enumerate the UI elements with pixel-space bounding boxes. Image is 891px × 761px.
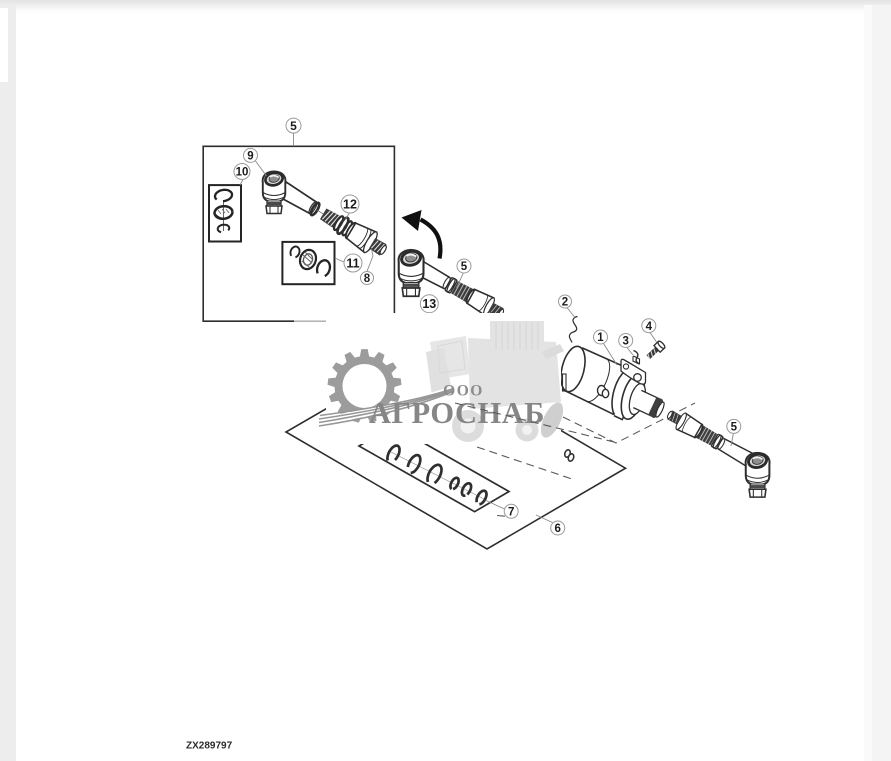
svg-text:5: 5	[461, 261, 468, 273]
svg-text:10: 10	[236, 167, 249, 179]
svg-text:9: 9	[247, 151, 253, 163]
svg-text:5: 5	[731, 422, 738, 434]
svg-text:8: 8	[364, 273, 371, 285]
svg-text:12: 12	[343, 198, 357, 212]
svg-text:4: 4	[646, 321, 653, 333]
svg-text:7: 7	[508, 506, 514, 518]
svg-text:6: 6	[554, 523, 560, 535]
svg-text:5: 5	[290, 119, 297, 133]
svg-text:13: 13	[422, 297, 436, 311]
svg-text:11: 11	[346, 257, 359, 271]
svg-text:АГРОСНАБ: АГРОСНАБ	[369, 396, 545, 430]
svg-text:1: 1	[597, 332, 604, 344]
svg-text:2: 2	[562, 297, 568, 309]
svg-text:ZX289797: ZX289797	[186, 741, 233, 752]
svg-text:3: 3	[622, 336, 628, 348]
